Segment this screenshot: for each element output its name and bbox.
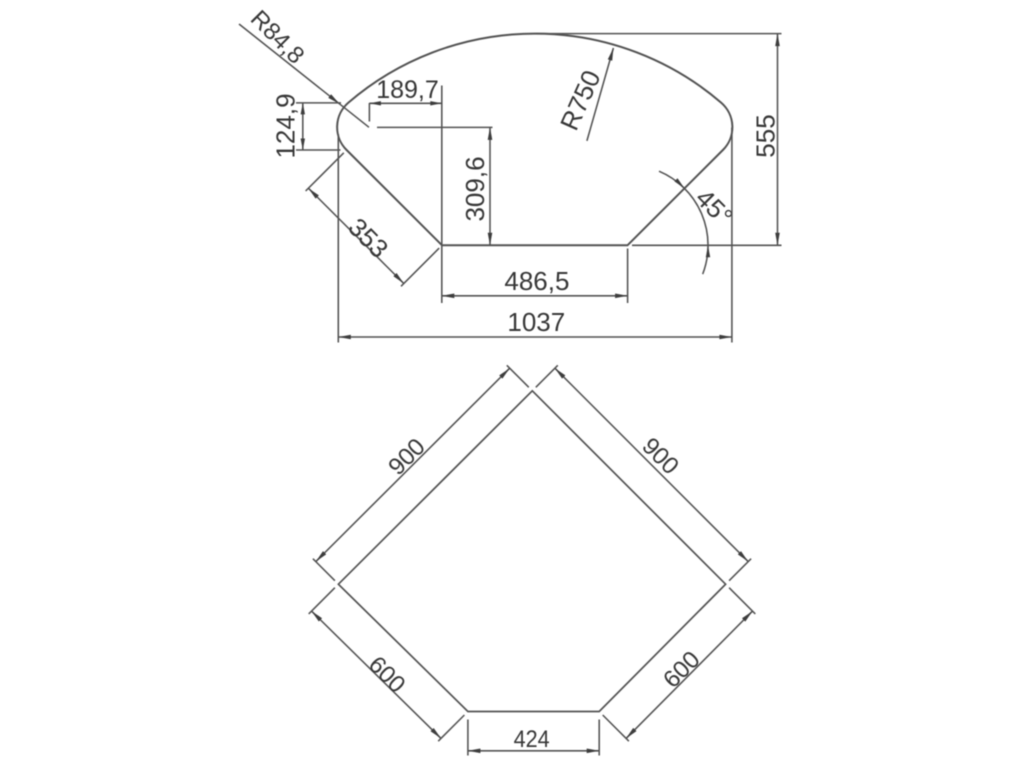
svg-text:600: 600 [658,646,705,693]
svg-text:600: 600 [363,651,410,698]
svg-text:124,9: 124,9 [270,93,300,158]
svg-text:424: 424 [514,725,550,752]
svg-text:353: 353 [342,212,394,264]
svg-text:555: 555 [750,114,780,157]
svg-text:900: 900 [383,433,430,480]
svg-text:309,6: 309,6 [460,156,490,221]
svg-text:1037: 1037 [507,307,565,337]
svg-text:900: 900 [636,433,683,480]
svg-text:189,7: 189,7 [376,76,439,104]
svg-text:486,5: 486,5 [504,266,569,296]
